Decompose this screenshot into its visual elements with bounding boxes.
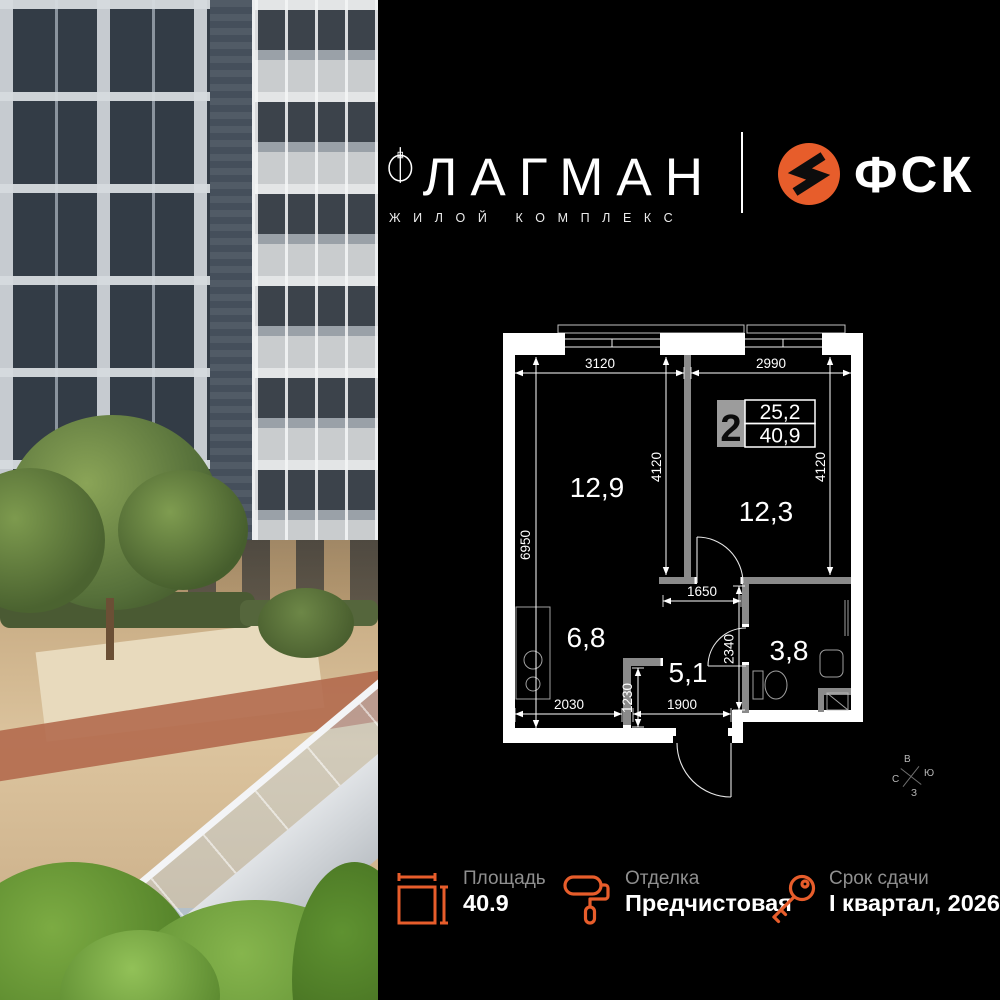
lighthouse-f-monogram-icon xyxy=(386,127,415,203)
dim-2990: 2990 xyxy=(756,356,786,371)
floor-plan: 3120 2990 6950 4120 4120 1650 2340 2030 … xyxy=(493,315,878,810)
dim-6950: 6950 xyxy=(518,530,533,560)
compass-rose: В Ю С З xyxy=(884,748,940,808)
room-hall-area: 5,1 xyxy=(669,657,708,688)
dim-4120-left: 4120 xyxy=(649,452,664,482)
paint-roller-icon xyxy=(562,871,612,927)
room-bathroom-area: 3,8 xyxy=(770,635,809,666)
compass-west: З xyxy=(911,788,917,799)
dim-1230: 1230 xyxy=(620,683,635,713)
dim-1900: 1900 xyxy=(667,697,697,712)
developer-name: ФСК xyxy=(854,149,975,200)
finishing-info-group: Отделка Предчистовая xyxy=(562,869,792,927)
room-bedroom-area: 12,3 xyxy=(739,496,794,527)
area-plan-icon xyxy=(396,871,450,927)
tree-trunk xyxy=(106,598,114,660)
building-photo xyxy=(0,0,378,1000)
area-info-group: Площадь 40.9 xyxy=(396,869,546,927)
flyer-canvas: ЛАГМАН ЖИЛОЙ КОМПЛЕКС ФСК xyxy=(0,0,1000,1000)
dim-3120: 3120 xyxy=(585,356,615,371)
badge-rooms-count: 2 xyxy=(720,408,741,450)
fsk-logo: ФСК xyxy=(777,142,975,206)
room-kitchen-area: 6,8 xyxy=(567,622,606,653)
unit-info-badge: 2 25,2 40,9 xyxy=(717,400,815,450)
deadline-label: Срок сдачи xyxy=(829,869,1000,888)
dim-2340: 2340 xyxy=(722,634,737,664)
deadline-value: I квартал, 2026 xyxy=(829,892,1000,916)
flagman-logo: ЛАГМАН ЖИЛОЙ КОМПЛЕКС xyxy=(386,127,716,225)
fsk-circle-icon xyxy=(777,142,841,206)
complex-title: ЛАГМАН xyxy=(423,154,716,203)
finishing-value: Предчистовая xyxy=(625,892,792,916)
compass-north: С xyxy=(892,774,899,785)
room-living-area: 12,9 xyxy=(570,472,625,503)
dim-1650: 1650 xyxy=(687,584,717,599)
badge-total-area: 40,9 xyxy=(760,425,801,448)
finishing-label: Отделка xyxy=(625,869,792,888)
compass-axis xyxy=(903,766,920,787)
shrub xyxy=(258,588,354,658)
area-value: 40.9 xyxy=(463,892,546,916)
badge-living-area: 25,2 xyxy=(760,401,801,424)
area-label: Площадь xyxy=(463,869,546,888)
dim-4120-right: 4120 xyxy=(813,452,828,482)
dim-2030: 2030 xyxy=(554,697,584,712)
compass-south: Ю xyxy=(924,768,934,779)
compass-east: В xyxy=(904,754,911,765)
tree-crown xyxy=(118,470,248,590)
logo-divider xyxy=(741,132,743,213)
key-icon xyxy=(768,871,816,927)
complex-subtitle: ЖИЛОЙ КОМПЛЕКС xyxy=(389,211,716,225)
deadline-info-group: Срок сдачи I квартал, 2026 xyxy=(768,869,1000,927)
